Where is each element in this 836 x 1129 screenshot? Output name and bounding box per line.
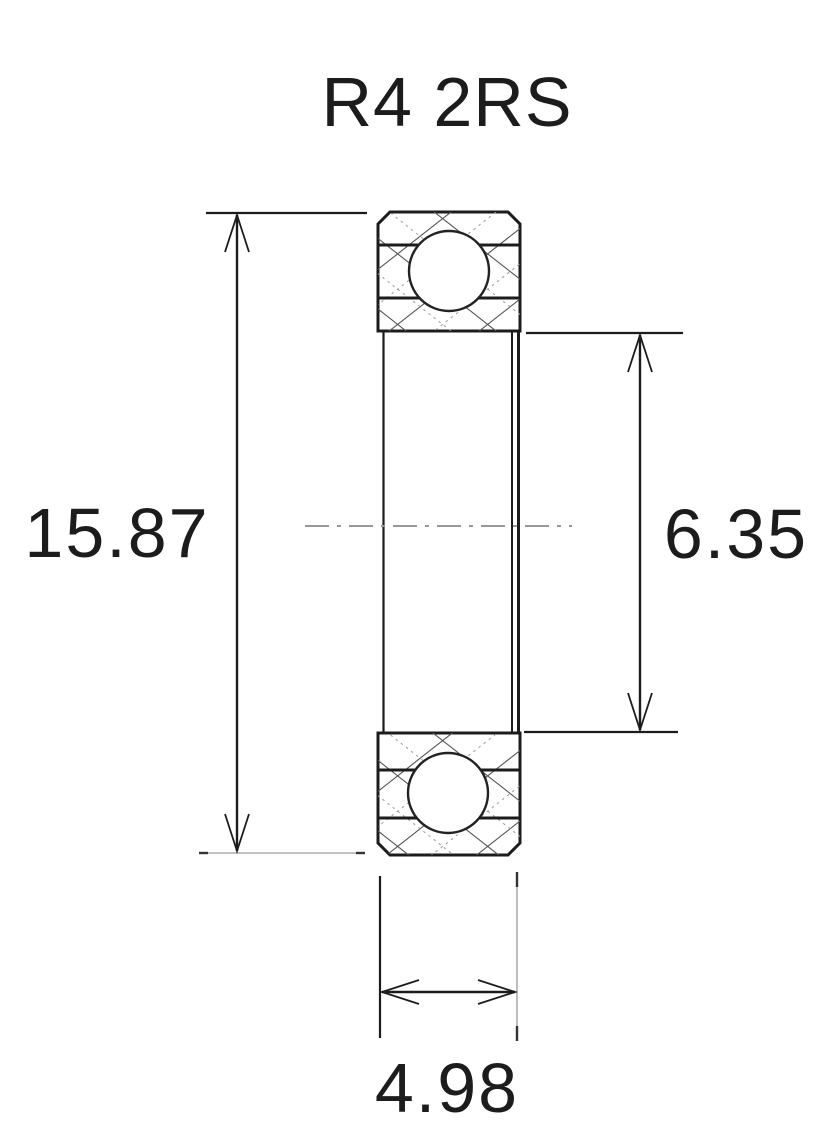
width-value: 4.98 [375,1049,519,1127]
bearing-bore-sleeve [384,331,519,733]
bearing-bottom-section [230,715,640,872]
bearing-drawing-canvas: R4 2RS [0,0,836,1129]
top-ball [409,231,489,311]
bore-diameter-value: 6.35 [664,495,808,573]
bearing-cross-section [230,193,640,872]
bottom-ball [408,753,488,833]
technical-drawing-page: R4 2RS [0,0,836,1129]
dimension-bore-diameter: 6.35 [524,333,808,732]
bearing-top-section [230,193,640,350]
dimension-width: 4.98 [375,872,519,1127]
outer-diameter-value: 15.87 [24,494,209,572]
dimension-outer-diameter: 15.87 [24,213,367,853]
drawing-title: R4 2RS [321,63,572,141]
